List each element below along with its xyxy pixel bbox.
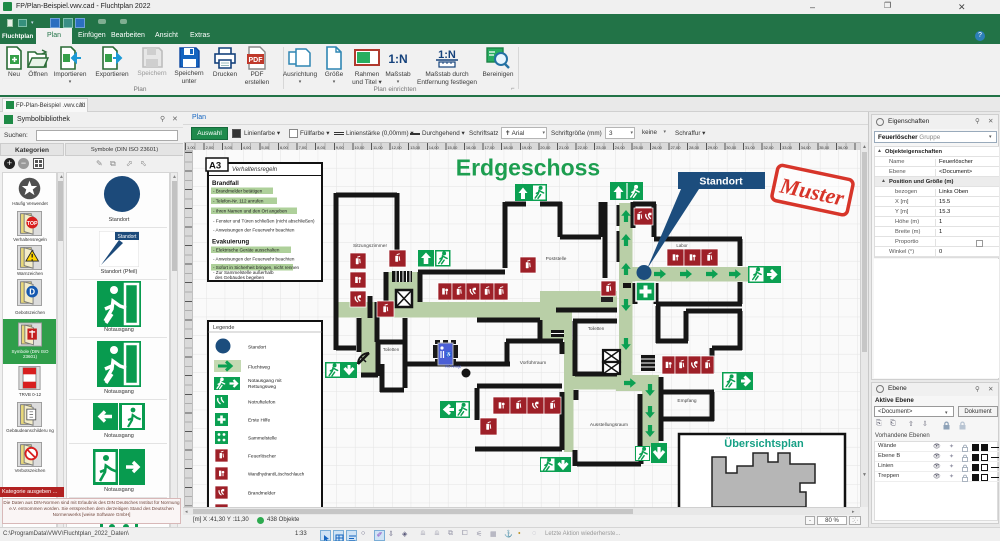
svg-text:Evakuierung: Evakuierung	[212, 239, 249, 246]
svg-text:Sitzungszimmer: Sitzungszimmer	[353, 243, 388, 249]
svg-text:TOP: TOP	[27, 221, 38, 227]
svg-text:Legende: Legende	[213, 325, 234, 331]
svg-text:- Elektrische Geräte ausschalt: - Elektrische Geräte ausschalten	[213, 248, 280, 253]
svg-text:- Ihren Namen und den Ort ange: - Ihren Namen und den Ort angeben	[213, 209, 288, 214]
svg-text:Ausstellungsraum: Ausstellungsraum	[590, 422, 628, 428]
svg-text:PDF: PDF	[249, 57, 264, 64]
svg-text:Feuerlöscher: Feuerlöscher	[248, 454, 276, 460]
svg-text:D: D	[29, 287, 35, 296]
svg-text:Verhaltensregeln: Verhaltensregeln	[232, 167, 278, 173]
svg-text:Brandmelder: Brandmelder	[248, 491, 276, 497]
svg-text:Fluchtweg: Fluchtweg	[248, 365, 270, 371]
svg-text:- Telefon-Nr. 112 anrufen: - Telefon-Nr. 112 anrufen	[213, 199, 264, 204]
svg-text:Erste Hilfe: Erste Hilfe	[248, 418, 270, 424]
svg-text:♿: ♿	[446, 351, 452, 358]
svg-text:Notausgang mit: Notausgang mit	[248, 378, 282, 384]
svg-text:1:N: 1:N	[438, 49, 456, 61]
svg-text:des Gebäudes begeben: des Gebäudes begeben	[215, 275, 264, 280]
svg-text:Übersichtsplan: Übersichtsplan	[724, 437, 804, 450]
svg-text:Wandhydrant/Löschschlauch: Wandhydrant/Löschschlauch	[248, 472, 305, 477]
svg-text:- Fenster und Türen schließen: - Fenster und Türen schließen (nicht abs…	[213, 219, 315, 224]
svg-text:A3: A3	[209, 161, 221, 172]
svg-text:Brandfall: Brandfall	[212, 180, 239, 187]
svg-text:Standort: Standort	[248, 345, 267, 351]
svg-text:Vorführraum: Vorführraum	[520, 360, 546, 366]
svg-text:- Anweisungen der Feuerwehr be: - Anweisungen der Feuerwehr beachten	[213, 228, 295, 233]
svg-text:Erdgeschoss: Erdgeschoss	[456, 155, 600, 181]
svg-text:Empfang: Empfang	[677, 398, 697, 404]
svg-text:- Brandmelder betätigen: - Brandmelder betätigen	[213, 189, 263, 194]
svg-text:Standort: Standort	[118, 234, 138, 240]
svg-text:Toiletten: Toiletten	[588, 326, 605, 331]
svg-text:Poststelle: Poststelle	[546, 256, 567, 262]
svg-text:1:N: 1:N	[388, 52, 407, 66]
svg-text:WC-Anlage: WC-Anlage	[445, 365, 462, 369]
svg-text:- Anweisungen der Feuerwehr be: - Anweisungen der Feuerwehr beachten	[213, 257, 295, 262]
svg-text:Toiletten: Toiletten	[383, 347, 400, 352]
svg-text:Sammelstelle: Sammelstelle	[248, 436, 277, 442]
svg-text:Standort: Standort	[699, 176, 743, 188]
svg-text:Labor: Labor	[676, 243, 688, 248]
svg-text:Rettungsweg: Rettungsweg	[248, 384, 276, 390]
svg-text:Notruftelefon: Notruftelefon	[248, 400, 276, 406]
